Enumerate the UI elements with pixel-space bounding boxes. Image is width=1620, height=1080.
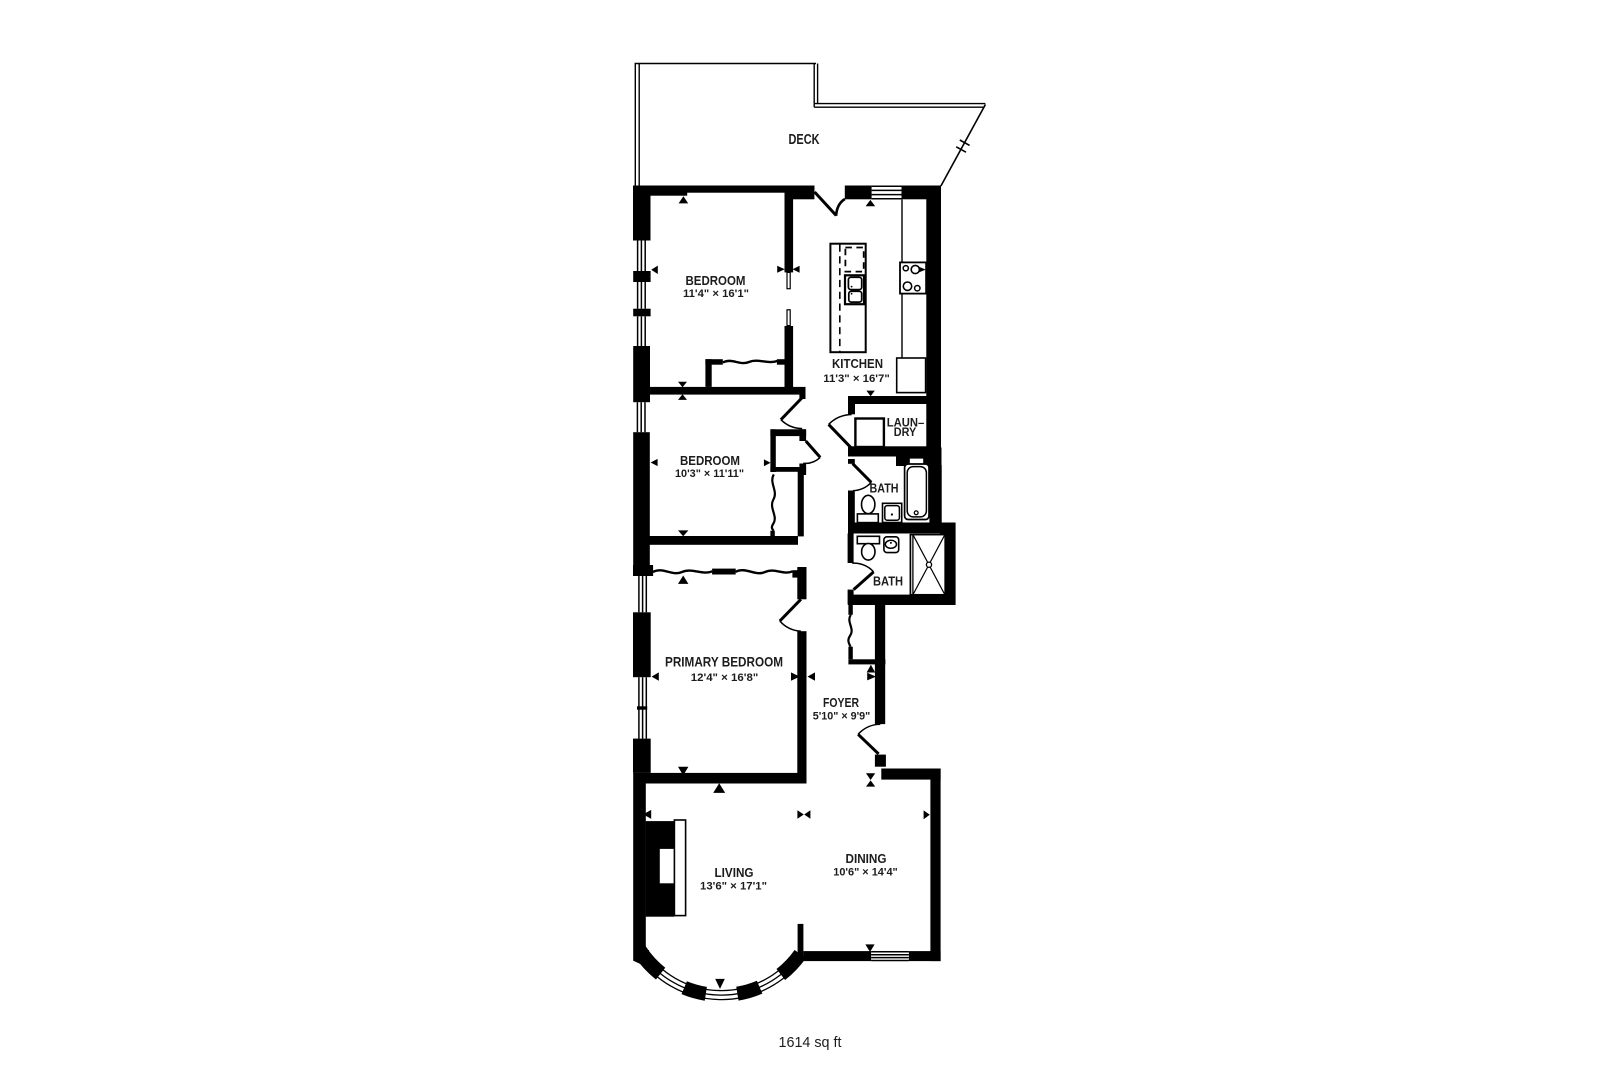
- svg-text:DECK: DECK: [789, 132, 820, 148]
- svg-text:10'6" × 14'4": 10'6" × 14'4": [833, 867, 898, 879]
- svg-text:5'10" × 9'9": 5'10" × 9'9": [813, 711, 871, 723]
- svg-text:FOYER: FOYER: [823, 695, 859, 710]
- svg-text:PRIMARY BEDROOM: PRIMARY BEDROOM: [665, 654, 783, 670]
- svg-text:BEDROOM: BEDROOM: [686, 273, 746, 288]
- svg-text:BATH: BATH: [873, 574, 903, 589]
- svg-text:KITCHEN: KITCHEN: [832, 356, 883, 371]
- svg-text:BATH: BATH: [870, 481, 899, 496]
- svg-text:DINING: DINING: [846, 851, 887, 866]
- svg-text:10'3" × 11'11": 10'3" × 11'11": [675, 468, 744, 480]
- svg-text:11'4" × 16'1": 11'4" × 16'1": [683, 288, 749, 300]
- svg-text:DRY: DRY: [894, 425, 917, 439]
- svg-text:1614 sq ft: 1614 sq ft: [779, 1034, 843, 1051]
- svg-text:11'3" × 16'7": 11'3" × 16'7": [823, 373, 890, 385]
- svg-text:LIVING: LIVING: [715, 865, 754, 880]
- svg-text:13'6" × 17'1": 13'6" × 17'1": [700, 881, 767, 893]
- svg-text:12'4" × 16'8": 12'4" × 16'8": [691, 672, 759, 684]
- svg-text:BEDROOM: BEDROOM: [680, 453, 740, 468]
